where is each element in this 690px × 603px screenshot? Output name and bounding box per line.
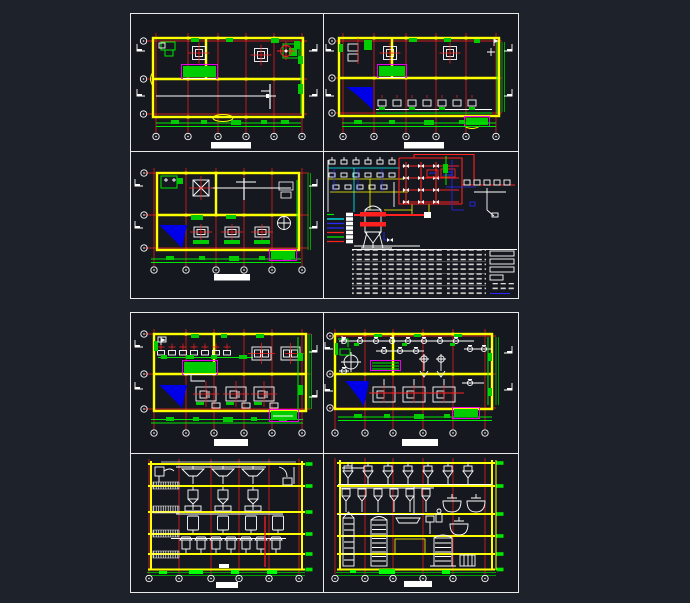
drawing-title-bar [216, 582, 238, 588]
panel-floor-plan-b[interactable] [324, 14, 518, 152]
drawing-sheet-upper[interactable] [130, 13, 519, 299]
stair-hatch [159, 225, 187, 248]
cad-canvas[interactable]: { "canvas": { "background": "#1e222a", "… [0, 0, 690, 603]
panel-equipment-plan[interactable] [324, 313, 518, 454]
drawing-title-bar [402, 439, 438, 446]
panel-section-a[interactable] [131, 454, 324, 592]
panel-floor-plan-a[interactable] [131, 14, 324, 152]
drawing-title-bar [214, 439, 248, 446]
pipe-legend [327, 215, 344, 242]
highlighted-fixture [183, 66, 216, 77]
drawing-title-bar [214, 274, 250, 281]
stair-hatch [345, 381, 369, 406]
schedule-table [352, 250, 517, 296]
stair-hatch [346, 87, 373, 110]
panel-section-b[interactable] [324, 454, 518, 592]
drawing-title-bar [211, 142, 251, 149]
drawing-sheet-lower[interactable] [130, 312, 519, 593]
screen-grid [395, 539, 425, 554]
stair-hatch [159, 385, 187, 408]
panel-floor-plan-c[interactable] [131, 152, 324, 298]
panel-piping-schematic[interactable] [324, 152, 518, 298]
drawing-title-bar [404, 142, 444, 149]
panel-floor-plan-d[interactable] [131, 313, 324, 454]
drawing-title-bar [404, 581, 432, 587]
